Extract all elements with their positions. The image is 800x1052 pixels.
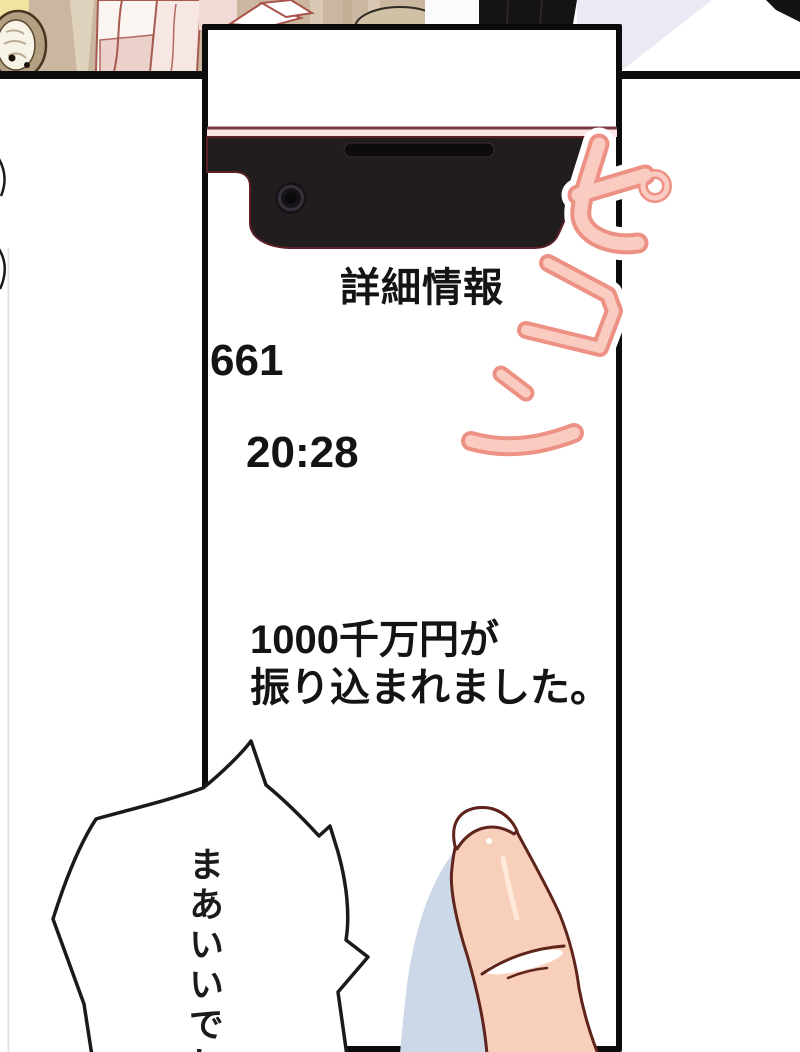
faint-panel-line <box>8 248 10 1052</box>
notification-message: 1000千万円が 振り込まれました。 <box>250 616 610 712</box>
message-line-1: 1000千万円が <box>250 616 610 664</box>
clock-icon <box>0 11 46 79</box>
bg-white <box>425 0 479 24</box>
notification-count: 661 <box>210 336 283 386</box>
notification-time: 20:28 <box>246 428 359 478</box>
left-edge-bubble-spike <box>0 159 5 196</box>
left-edge-bubble-spike <box>0 249 5 289</box>
message-line-2: 振り込まれました。 <box>250 664 610 712</box>
phone-panel: 詳細情報 661 20:28 1000千万円が 振り込まれました。 <box>202 24 622 1052</box>
speech-bubble-text: まあいいでし <box>181 846 229 1052</box>
manga-page: 詳細情報 661 20:28 1000千万円が 振り込まれました。 <box>0 0 800 1052</box>
black-figure <box>479 0 577 24</box>
screen-title: 詳細情報 <box>340 255 504 313</box>
